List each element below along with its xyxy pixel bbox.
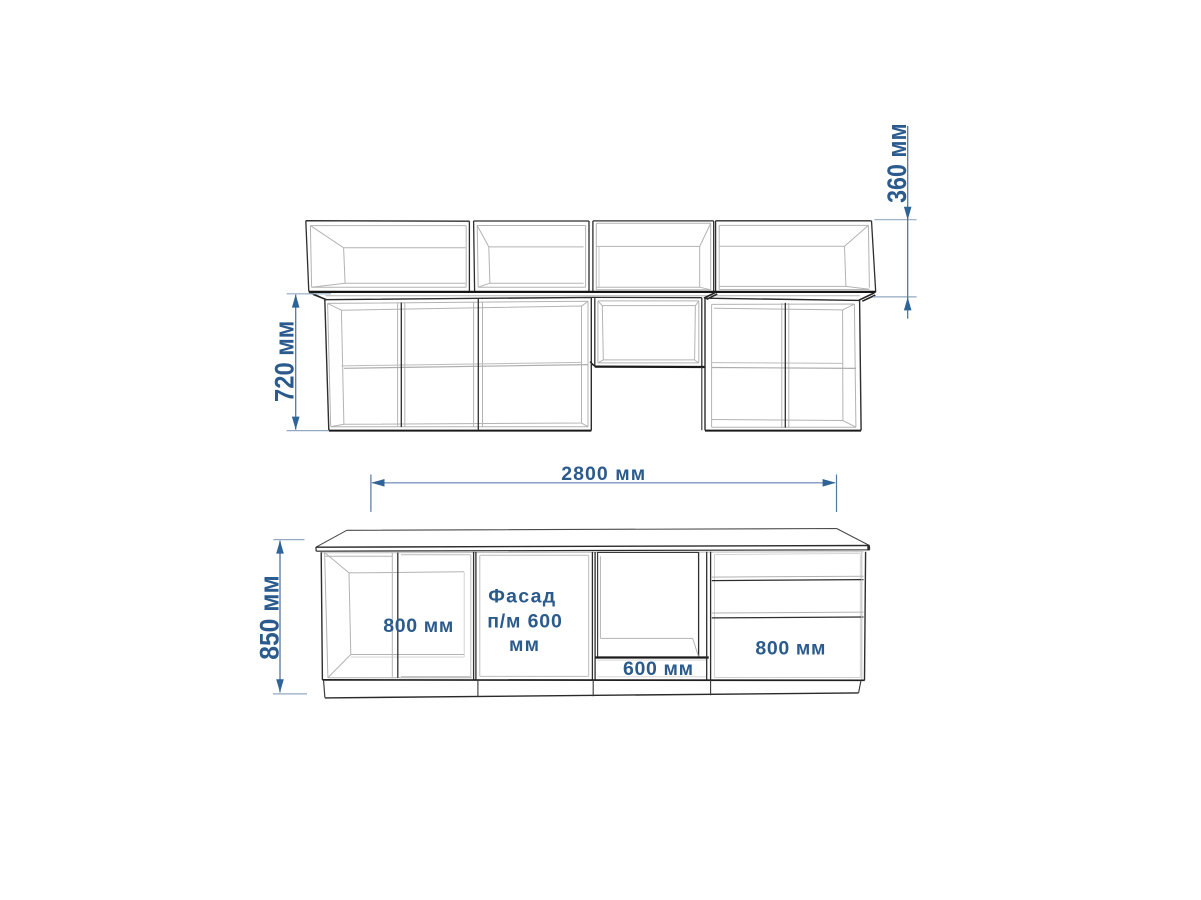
svg-text:Фасад: Фасад bbox=[488, 586, 556, 608]
svg-text:800 мм: 800 мм bbox=[383, 615, 453, 637]
svg-text:2800 мм: 2800 мм bbox=[561, 463, 645, 485]
svg-text:800 мм: 800 мм bbox=[755, 638, 825, 660]
svg-text:мм: мм bbox=[509, 634, 539, 656]
svg-text:п/м 600: п/м 600 bbox=[487, 611, 562, 633]
svg-text:600 мм: 600 мм bbox=[623, 658, 693, 680]
svg-text:360 мм: 360 мм bbox=[882, 123, 912, 203]
svg-text:850 мм: 850 мм bbox=[255, 575, 285, 660]
svg-text:720 мм: 720 мм bbox=[269, 321, 299, 402]
